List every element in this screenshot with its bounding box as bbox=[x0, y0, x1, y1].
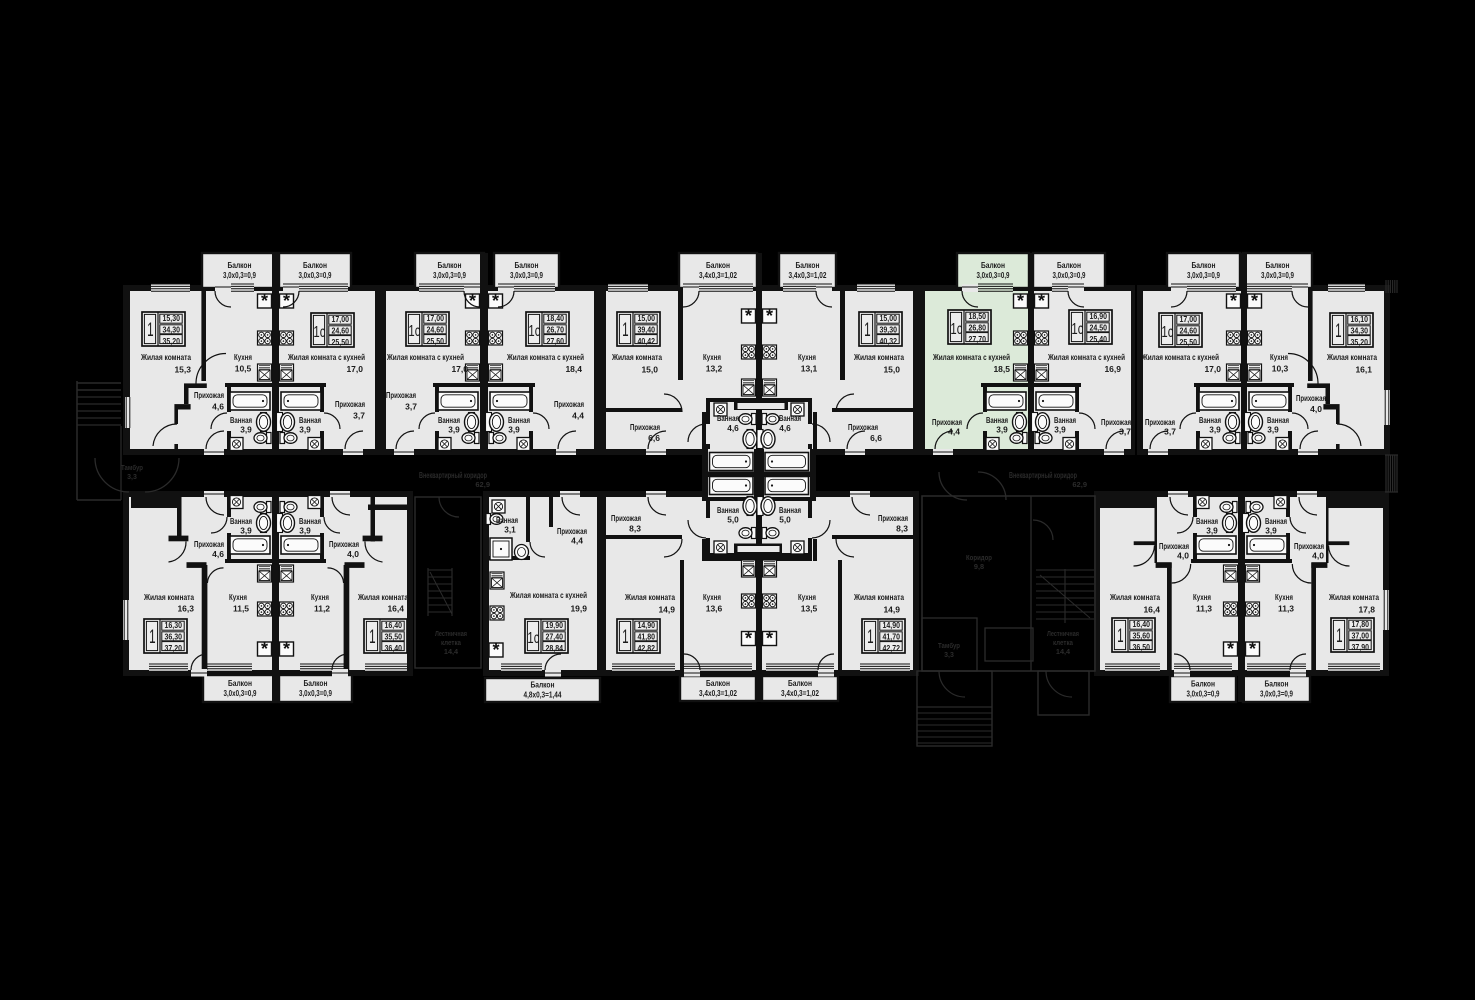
svg-text:Ванная: Ванная bbox=[230, 415, 252, 425]
svg-text:39,40: 39,40 bbox=[638, 326, 656, 335]
svg-text:27,60: 27,60 bbox=[547, 337, 565, 346]
svg-text:4,0: 4,0 bbox=[1310, 404, 1322, 414]
svg-text:3,0х0,3=0,9: 3,0х0,3=0,9 bbox=[224, 688, 257, 698]
svg-text:3,9: 3,9 bbox=[1265, 526, 1277, 536]
svg-text:*: * bbox=[745, 629, 752, 649]
svg-text:Прихожая: Прихожая bbox=[611, 513, 641, 523]
svg-text:Ванная: Ванная bbox=[496, 515, 518, 525]
svg-text:Жилая комната с кухней: Жилая комната с кухней bbox=[386, 352, 464, 362]
svg-text:Балкон: Балкон bbox=[706, 260, 730, 270]
svg-text:17,0: 17,0 bbox=[451, 364, 468, 374]
svg-text:3,9: 3,9 bbox=[240, 526, 252, 536]
svg-text:3,4х0,3=1,02: 3,4х0,3=1,02 bbox=[699, 270, 737, 280]
svg-text:3,4х0,3=1,02: 3,4х0,3=1,02 bbox=[789, 270, 827, 280]
svg-text:Ванная: Ванная bbox=[299, 415, 321, 425]
svg-text:Кухня: Кухня bbox=[229, 592, 247, 602]
svg-text:3,0х0,3=0,9: 3,0х0,3=0,9 bbox=[1261, 270, 1294, 280]
svg-text:5,0: 5,0 bbox=[727, 515, 739, 525]
svg-text:16,1: 16,1 bbox=[1355, 365, 1372, 375]
svg-text:5,0: 5,0 bbox=[779, 515, 791, 525]
svg-text:Балкон: Балкон bbox=[796, 260, 820, 270]
svg-text:35,20: 35,20 bbox=[163, 337, 181, 346]
svg-text:10,3: 10,3 bbox=[1272, 364, 1289, 374]
svg-text:40,32: 40,32 bbox=[880, 337, 898, 346]
svg-text:Ванная: Ванная bbox=[1196, 516, 1218, 526]
svg-text:Ванная: Ванная bbox=[508, 415, 530, 425]
svg-text:3,0х0,3=0,9: 3,0х0,3=0,9 bbox=[1187, 689, 1220, 699]
svg-text:1: 1 bbox=[622, 320, 629, 341]
svg-text:16,4: 16,4 bbox=[1143, 605, 1160, 615]
svg-text:*: * bbox=[766, 629, 773, 649]
svg-text:Жилая комната с кухней: Жилая комната с кухней bbox=[1141, 352, 1219, 362]
svg-text:4,8х0,3=1,44: 4,8х0,3=1,44 bbox=[524, 690, 562, 700]
svg-text:8,3: 8,3 bbox=[629, 524, 641, 534]
svg-text:*: * bbox=[261, 639, 268, 659]
svg-text:4,6: 4,6 bbox=[727, 423, 739, 433]
svg-text:Кухня: Кухня bbox=[798, 352, 816, 362]
svg-text:Прихожая: Прихожая bbox=[1145, 417, 1175, 427]
svg-text:Жилая комната: Жилая комната bbox=[140, 352, 191, 362]
svg-text:6,6: 6,6 bbox=[870, 433, 882, 443]
svg-text:Ванная: Ванная bbox=[779, 505, 801, 515]
svg-text:Прихожая: Прихожая bbox=[1159, 541, 1189, 551]
svg-text:14,4: 14,4 bbox=[1056, 647, 1071, 656]
svg-text:1: 1 bbox=[864, 320, 871, 341]
svg-text:Жилая комната: Жилая комната bbox=[1326, 352, 1377, 362]
svg-text:24,50: 24,50 bbox=[1090, 324, 1108, 333]
svg-text:Балкон: Балкон bbox=[304, 678, 328, 688]
svg-text:Кухня: Кухня bbox=[311, 592, 329, 602]
svg-text:*: * bbox=[1249, 639, 1256, 659]
svg-text:15,0: 15,0 bbox=[883, 365, 900, 375]
svg-text:Прихожая: Прихожая bbox=[554, 399, 584, 409]
svg-text:Балкон: Балкон bbox=[1191, 679, 1215, 689]
svg-text:Балкон: Балкон bbox=[515, 260, 539, 270]
svg-text:Жилая комната: Жилая комната bbox=[853, 592, 904, 602]
svg-text:3,0х0,3=0,9: 3,0х0,3=0,9 bbox=[299, 270, 332, 280]
svg-text:Ванная: Ванная bbox=[986, 415, 1008, 425]
svg-text:3,3: 3,3 bbox=[944, 652, 954, 659]
svg-text:35,50: 35,50 bbox=[385, 633, 403, 642]
svg-text:*: * bbox=[745, 306, 752, 326]
svg-text:15,0: 15,0 bbox=[641, 365, 658, 375]
svg-text:19,9: 19,9 bbox=[570, 604, 587, 614]
svg-text:42,72: 42,72 bbox=[883, 644, 901, 653]
svg-text:1: 1 bbox=[867, 627, 874, 648]
svg-text:3,0х0,3=0,9: 3,0х0,3=0,9 bbox=[1187, 270, 1220, 280]
svg-text:3,0х0,3=0,9: 3,0х0,3=0,9 bbox=[977, 270, 1010, 280]
svg-text:24,60: 24,60 bbox=[1180, 327, 1198, 336]
svg-text:Прихожая: Прихожая bbox=[630, 422, 660, 432]
svg-text:13,2: 13,2 bbox=[706, 364, 723, 374]
svg-text:Ванная: Ванная bbox=[717, 505, 739, 515]
svg-text:Кухня: Кухня bbox=[703, 592, 721, 602]
svg-text:1: 1 bbox=[369, 627, 376, 648]
svg-text:24,60: 24,60 bbox=[332, 327, 350, 336]
svg-text:Прихожая: Прихожая bbox=[386, 390, 416, 400]
svg-text:Прихожая: Прихожая bbox=[194, 390, 224, 400]
svg-text:16,4: 16,4 bbox=[387, 604, 404, 614]
svg-text:3,0х0,3=0,9: 3,0х0,3=0,9 bbox=[433, 270, 466, 280]
svg-text:26,70: 26,70 bbox=[547, 326, 565, 335]
svg-text:3,9: 3,9 bbox=[299, 425, 311, 435]
svg-text:11,3: 11,3 bbox=[1278, 604, 1294, 614]
svg-text:15,00: 15,00 bbox=[638, 314, 656, 323]
svg-text:1: 1 bbox=[1335, 321, 1342, 342]
svg-text:3,9: 3,9 bbox=[299, 526, 311, 536]
svg-text:Жилая комната с кухней: Жилая комната с кухней bbox=[506, 352, 584, 362]
svg-text:18,4: 18,4 bbox=[565, 364, 582, 374]
svg-text:Жилая комната с кухней: Жилая комната с кухней bbox=[509, 590, 587, 600]
svg-text:42,82: 42,82 bbox=[638, 644, 656, 653]
svg-text:Ванная: Ванная bbox=[299, 516, 321, 526]
svg-text:37,20: 37,20 bbox=[165, 644, 183, 653]
svg-text:17,80: 17,80 bbox=[1352, 620, 1370, 629]
svg-text:37,00: 37,00 bbox=[1352, 632, 1370, 641]
svg-text:Балкон: Балкон bbox=[981, 260, 1005, 270]
svg-text:Жилая комната: Жилая комната bbox=[853, 352, 904, 362]
svg-text:18,40: 18,40 bbox=[547, 314, 565, 323]
svg-text:41,70: 41,70 bbox=[883, 633, 901, 642]
svg-text:Ванная: Ванная bbox=[717, 413, 739, 423]
svg-text:*: * bbox=[1230, 291, 1237, 311]
svg-text:1: 1 bbox=[1336, 626, 1343, 647]
svg-text:16,90: 16,90 bbox=[1090, 312, 1108, 321]
svg-text:3,9: 3,9 bbox=[1054, 425, 1066, 435]
svg-text:*: * bbox=[766, 306, 773, 326]
svg-text:*: * bbox=[1251, 291, 1258, 311]
svg-text:*: * bbox=[283, 639, 290, 659]
svg-text:Кухня: Кухня bbox=[234, 352, 252, 362]
svg-text:3,0х0,3=0,9: 3,0х0,3=0,9 bbox=[1260, 689, 1293, 699]
svg-text:16,40: 16,40 bbox=[1133, 620, 1151, 629]
svg-text:4,0: 4,0 bbox=[1177, 551, 1189, 561]
svg-text:1: 1 bbox=[622, 627, 629, 648]
svg-text:Прихожая: Прихожая bbox=[1101, 417, 1131, 427]
svg-text:11,3: 11,3 bbox=[1196, 604, 1212, 614]
svg-text:35,60: 35,60 bbox=[1133, 632, 1151, 641]
svg-text:3,0х0,3=0,9: 3,0х0,3=0,9 bbox=[510, 270, 543, 280]
svg-text:Лестничная: Лестничная bbox=[435, 629, 467, 638]
svg-text:3,4х0,3=1,02: 3,4х0,3=1,02 bbox=[699, 688, 737, 698]
svg-text:Балкон: Балкон bbox=[1192, 260, 1216, 270]
svg-text:Кухня: Кухня bbox=[703, 352, 721, 362]
svg-text:1: 1 bbox=[1117, 626, 1124, 647]
svg-text:3,7: 3,7 bbox=[353, 411, 365, 421]
svg-text:11,2: 11,2 bbox=[314, 604, 330, 614]
svg-text:25,50: 25,50 bbox=[332, 338, 350, 347]
svg-text:17,0: 17,0 bbox=[1204, 364, 1221, 374]
svg-text:Коридор: Коридор bbox=[966, 553, 992, 562]
svg-text:Ванная: Ванная bbox=[1054, 415, 1076, 425]
svg-text:16,30: 16,30 bbox=[165, 621, 183, 630]
svg-text:Внеквартирный коридор: Внеквартирный коридор bbox=[419, 471, 487, 480]
svg-text:Лестничная: Лестничная bbox=[1047, 629, 1079, 638]
svg-text:Ванная: Ванная bbox=[230, 516, 252, 526]
svg-text:Балкон: Балкон bbox=[438, 260, 462, 270]
svg-text:3,1: 3,1 bbox=[504, 525, 516, 535]
svg-text:3,9: 3,9 bbox=[1206, 526, 1218, 536]
svg-text:*: * bbox=[261, 291, 268, 311]
svg-text:3,9: 3,9 bbox=[1267, 425, 1279, 435]
svg-text:1с: 1с bbox=[313, 324, 325, 341]
svg-text:14,9: 14,9 bbox=[658, 605, 675, 615]
svg-text:17,8: 17,8 bbox=[1358, 605, 1375, 615]
svg-text:Кухня: Кухня bbox=[798, 592, 816, 602]
svg-text:28,84: 28,84 bbox=[546, 644, 564, 653]
svg-text:Балкон: Балкон bbox=[1265, 679, 1289, 689]
svg-text:1с: 1с bbox=[950, 321, 962, 338]
svg-text:18,5: 18,5 bbox=[993, 364, 1010, 374]
svg-text:Балкон: Балкон bbox=[1266, 260, 1290, 270]
svg-text:Жилая комната: Жилая комната bbox=[624, 592, 675, 602]
svg-text:17,00: 17,00 bbox=[1180, 315, 1198, 324]
svg-text:Прихожая: Прихожая bbox=[932, 417, 962, 427]
svg-text:16,10: 16,10 bbox=[1351, 315, 1369, 324]
svg-text:35,20: 35,20 bbox=[1351, 338, 1369, 347]
svg-text:27,70: 27,70 bbox=[969, 335, 987, 344]
svg-text:Ванная: Ванная bbox=[779, 413, 801, 423]
svg-text:26,80: 26,80 bbox=[969, 324, 987, 333]
svg-text:4,4: 4,4 bbox=[572, 411, 584, 421]
svg-text:Балкон: Балкон bbox=[228, 678, 252, 688]
svg-text:Прихожая: Прихожая bbox=[557, 526, 587, 536]
svg-text:17,00: 17,00 bbox=[427, 314, 445, 323]
svg-text:Балкон: Балкон bbox=[706, 678, 730, 688]
svg-text:Жилая комната: Жилая комната bbox=[357, 592, 408, 602]
svg-text:*: * bbox=[1227, 639, 1234, 659]
svg-text:34,30: 34,30 bbox=[163, 326, 181, 335]
svg-text:62,9: 62,9 bbox=[1072, 480, 1087, 489]
svg-text:9,8: 9,8 bbox=[974, 562, 984, 571]
svg-text:Балкон: Балкон bbox=[1057, 260, 1081, 270]
svg-text:11,5: 11,5 bbox=[233, 604, 249, 614]
svg-text:1с: 1с bbox=[528, 323, 540, 340]
svg-text:*: * bbox=[1038, 291, 1045, 311]
svg-text:Жилая комната: Жилая комната bbox=[611, 352, 662, 362]
svg-text:Жилая комната: Жилая комната bbox=[143, 592, 194, 602]
svg-text:16,9: 16,9 bbox=[1104, 364, 1121, 374]
svg-text:34,30: 34,30 bbox=[1351, 327, 1369, 336]
svg-text:37,90: 37,90 bbox=[1352, 643, 1370, 652]
svg-text:Тамбур: Тамбур bbox=[938, 642, 960, 650]
svg-text:25,40: 25,40 bbox=[1090, 335, 1108, 344]
svg-text:14,4: 14,4 bbox=[444, 647, 459, 656]
svg-text:клетка: клетка bbox=[1053, 638, 1074, 647]
svg-text:13,1: 13,1 bbox=[801, 364, 818, 374]
svg-text:15,00: 15,00 bbox=[880, 314, 898, 323]
svg-text:15,3: 15,3 bbox=[174, 365, 191, 375]
svg-text:3,0х0,3=0,9: 3,0х0,3=0,9 bbox=[223, 270, 256, 280]
svg-text:25,50: 25,50 bbox=[1180, 338, 1198, 347]
svg-text:4,4: 4,4 bbox=[571, 536, 583, 546]
svg-text:16,3: 16,3 bbox=[177, 604, 194, 614]
svg-text:Балкон: Балкон bbox=[531, 680, 555, 690]
svg-text:Балкон: Балкон bbox=[788, 678, 812, 688]
svg-text:Кухня: Кухня bbox=[1270, 352, 1288, 362]
svg-text:14,90: 14,90 bbox=[638, 621, 656, 630]
svg-text:1с: 1с bbox=[527, 630, 539, 647]
svg-text:4,0: 4,0 bbox=[1312, 551, 1324, 561]
svg-text:Балкон: Балкон bbox=[303, 260, 327, 270]
svg-text:3,4х0,3=1,02: 3,4х0,3=1,02 bbox=[781, 688, 819, 698]
svg-text:36,50: 36,50 bbox=[1133, 643, 1151, 652]
svg-text:13,6: 13,6 bbox=[706, 604, 723, 614]
svg-text:Жилая комната: Жилая комната bbox=[1109, 592, 1160, 602]
svg-text:Кухня: Кухня bbox=[1275, 592, 1293, 602]
svg-text:Жилая комната с кухней: Жилая комната с кухней bbox=[932, 352, 1010, 362]
svg-text:25,50: 25,50 bbox=[427, 337, 445, 346]
svg-text:*: * bbox=[469, 291, 476, 311]
svg-text:19,90: 19,90 bbox=[546, 621, 564, 630]
svg-text:13,5: 13,5 bbox=[801, 604, 818, 614]
svg-text:10,5: 10,5 bbox=[235, 364, 252, 374]
svg-text:3,0х0,3=0,9: 3,0х0,3=0,9 bbox=[1053, 270, 1086, 280]
svg-text:18,50: 18,50 bbox=[969, 312, 987, 321]
svg-text:4,6: 4,6 bbox=[212, 402, 224, 412]
svg-text:*: * bbox=[492, 640, 499, 660]
svg-text:Ванная: Ванная bbox=[1265, 516, 1287, 526]
svg-text:Кухня: Кухня bbox=[1193, 592, 1211, 602]
svg-text:Ванная: Ванная bbox=[438, 415, 460, 425]
svg-text:36,40: 36,40 bbox=[385, 644, 403, 653]
svg-text:1: 1 bbox=[147, 320, 154, 341]
svg-text:4,0: 4,0 bbox=[347, 549, 359, 559]
svg-text:3,7: 3,7 bbox=[405, 402, 417, 412]
svg-text:клетка: клетка bbox=[441, 638, 462, 647]
svg-text:3,9: 3,9 bbox=[508, 425, 520, 435]
svg-text:3,0х0,3=0,9: 3,0х0,3=0,9 bbox=[299, 688, 332, 698]
svg-text:41,80: 41,80 bbox=[638, 633, 656, 642]
svg-text:8,3: 8,3 bbox=[896, 524, 908, 534]
svg-text:*: * bbox=[1017, 291, 1024, 311]
svg-text:Прихожая: Прихожая bbox=[329, 539, 359, 549]
svg-text:Прихожая: Прихожая bbox=[1296, 393, 1326, 403]
svg-text:3,9: 3,9 bbox=[1209, 425, 1221, 435]
svg-text:17,00: 17,00 bbox=[332, 315, 350, 324]
svg-text:Прихожая: Прихожая bbox=[194, 539, 224, 549]
svg-text:Прихожая: Прихожая bbox=[1294, 541, 1324, 551]
svg-text:Прихожая: Прихожая bbox=[335, 399, 365, 409]
svg-text:39,30: 39,30 bbox=[880, 326, 898, 335]
svg-text:14,9: 14,9 bbox=[883, 605, 900, 615]
svg-text:1с: 1с bbox=[408, 323, 420, 340]
svg-text:62,9: 62,9 bbox=[475, 480, 490, 489]
svg-text:14,90: 14,90 bbox=[883, 621, 901, 630]
svg-text:3,9: 3,9 bbox=[996, 425, 1008, 435]
svg-text:Тамбур: Тамбур bbox=[121, 464, 143, 472]
svg-text:3,9: 3,9 bbox=[448, 425, 460, 435]
svg-text:*: * bbox=[492, 291, 499, 311]
svg-text:1с: 1с bbox=[1071, 321, 1083, 338]
svg-text:1с: 1с bbox=[1161, 324, 1173, 341]
svg-text:1: 1 bbox=[149, 627, 156, 648]
svg-text:Ванная: Ванная bbox=[1199, 415, 1221, 425]
svg-text:40,42: 40,42 bbox=[638, 337, 656, 346]
svg-text:3,9: 3,9 bbox=[240, 425, 252, 435]
svg-text:16,40: 16,40 bbox=[385, 621, 403, 630]
svg-text:Жилая комната: Жилая комната bbox=[1328, 592, 1379, 602]
svg-text:17,0: 17,0 bbox=[346, 364, 363, 374]
svg-text:Жилая комната с кухней: Жилая комната с кухней bbox=[1047, 352, 1125, 362]
svg-text:24,60: 24,60 bbox=[427, 326, 445, 335]
svg-text:3,3: 3,3 bbox=[127, 474, 137, 481]
svg-text:27,40: 27,40 bbox=[546, 633, 564, 642]
svg-text:4,6: 4,6 bbox=[779, 423, 791, 433]
svg-text:Балкон: Балкон bbox=[228, 260, 252, 270]
svg-text:4,6: 4,6 bbox=[212, 549, 224, 559]
svg-text:15,30: 15,30 bbox=[163, 314, 181, 323]
svg-text:Жилая комната с кухней: Жилая комната с кухней bbox=[287, 352, 365, 362]
svg-text:36,30: 36,30 bbox=[165, 633, 183, 642]
svg-text:Ванная: Ванная bbox=[1267, 415, 1289, 425]
svg-text:Прихожая: Прихожая bbox=[878, 513, 908, 523]
svg-text:Внеквартирный коридор: Внеквартирный коридор bbox=[1009, 471, 1077, 480]
svg-text:*: * bbox=[283, 291, 290, 311]
